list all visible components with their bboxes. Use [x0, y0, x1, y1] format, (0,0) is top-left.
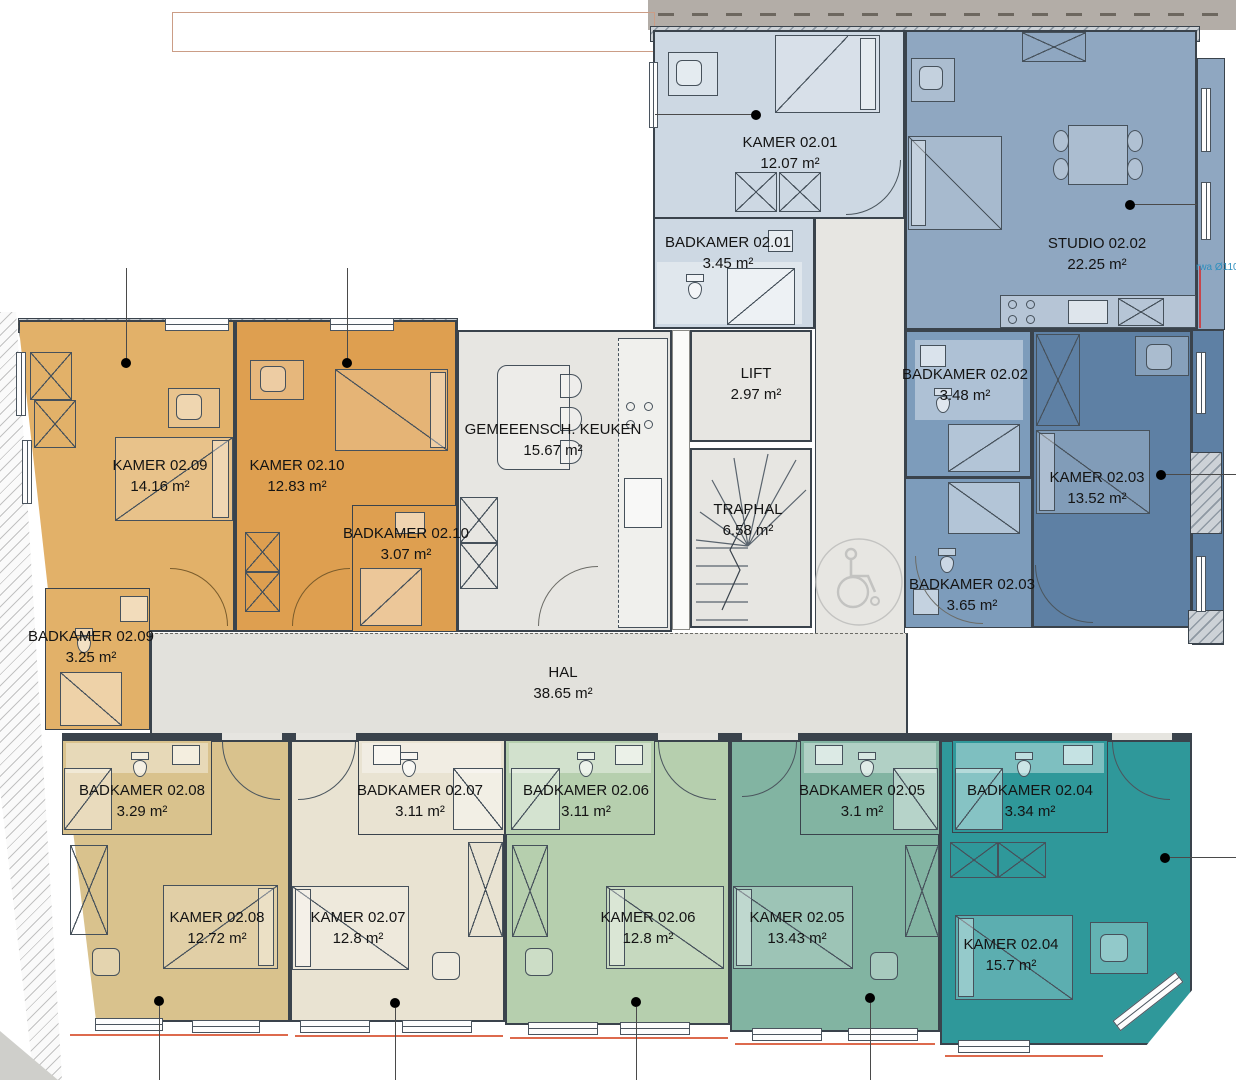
leader-line [636, 1007, 637, 1080]
window [402, 1020, 472, 1033]
counter-unit [1118, 298, 1164, 326]
leader-line [1133, 204, 1197, 205]
sink [920, 345, 946, 367]
window [1196, 352, 1206, 414]
ref-dot-kamer-02-09 [121, 358, 131, 368]
toilet-icon [75, 628, 93, 654]
shaft [672, 330, 690, 630]
wardrobe [905, 845, 939, 937]
ref-dot-kamer-02-05 [865, 993, 875, 1003]
stool [560, 407, 582, 431]
stove-burner [644, 420, 653, 429]
leader-line [1165, 474, 1236, 475]
stairs [692, 450, 810, 626]
toilet-icon [934, 388, 952, 414]
door-opening [296, 733, 356, 740]
leader-line [395, 1008, 396, 1080]
stove-burner [626, 402, 635, 411]
window [848, 1028, 918, 1041]
leader-line [347, 268, 348, 364]
window-sill [945, 1055, 1103, 1057]
bed-pillow [258, 888, 274, 966]
shower-diag [512, 769, 559, 829]
leader-line [655, 114, 757, 115]
bed-pillow [911, 140, 926, 226]
chair [176, 394, 202, 420]
chair [260, 366, 286, 392]
door-opening [222, 733, 282, 740]
toilet-icon [686, 274, 704, 300]
sink [615, 745, 643, 765]
leader-line [159, 1006, 160, 1080]
chair [870, 952, 898, 980]
leader-line [870, 1003, 871, 1080]
window [958, 1040, 1030, 1053]
shower-diag [949, 425, 1019, 471]
wardrobe [245, 572, 280, 612]
wardrobe [779, 172, 821, 212]
ref-dot-kamer-02-07 [390, 998, 400, 1008]
stool [560, 374, 582, 398]
chair [432, 952, 460, 980]
ref-dot-kamer-02-08 [154, 996, 164, 1006]
dining-table [1068, 125, 1128, 185]
wheelchair-icon [813, 536, 905, 628]
wardrobe [245, 532, 280, 572]
window-sill [735, 1043, 935, 1045]
sink [1063, 745, 1093, 765]
shower [360, 568, 422, 626]
shower [948, 482, 1020, 534]
shower-diag [361, 569, 421, 625]
window [16, 352, 26, 416]
stool [560, 440, 582, 464]
stove-burner [1026, 300, 1035, 309]
wardrobe [735, 172, 777, 212]
window [649, 62, 658, 128]
road-dashes [658, 13, 1236, 16]
sink [624, 478, 662, 528]
stove-burner [1008, 300, 1017, 309]
bed-pillow [212, 440, 229, 518]
window [165, 318, 229, 331]
bed-pillow [958, 918, 974, 997]
window [620, 1022, 690, 1035]
sink [768, 230, 793, 252]
shower-diag [454, 769, 502, 829]
wardrobe [468, 842, 503, 937]
shower-diag [956, 769, 1002, 829]
ref-dot-kamer-02-10 [342, 358, 352, 368]
bed-pillow [736, 889, 752, 966]
chair [92, 948, 120, 976]
red-marker [1199, 266, 1201, 328]
shower-diag [65, 769, 111, 829]
shower [453, 768, 503, 830]
window [95, 1018, 163, 1031]
wardrobe [460, 497, 498, 543]
shower-diag [949, 483, 1019, 533]
ref-dot-kamer-02-06 [631, 997, 641, 1007]
stove-burner [644, 402, 653, 411]
window-sill [510, 1037, 728, 1039]
wardrobe [512, 845, 548, 937]
door-opening [658, 733, 718, 740]
wardrobe [950, 842, 998, 878]
bed-fold [776, 36, 848, 112]
ref-dot-kamer-02-01 [751, 110, 761, 120]
toilet-icon [400, 752, 418, 778]
shower-diag [728, 269, 794, 324]
chair [1053, 130, 1069, 152]
room-lift [690, 330, 812, 442]
sink [395, 512, 425, 534]
window [300, 1020, 370, 1033]
room-hal [150, 633, 908, 737]
bed-pillow [295, 889, 311, 967]
shower [948, 424, 1020, 472]
window [1201, 88, 1211, 152]
floor-plan: KAMER 02.0112.07 m² BADKAMER 02.013.45 m… [0, 0, 1236, 1080]
window-sill [70, 1034, 288, 1036]
toilet-icon [1015, 752, 1033, 778]
bed-pillow [609, 889, 625, 966]
toilet-icon [858, 752, 876, 778]
bed-pillow [430, 372, 446, 448]
shower [60, 672, 122, 726]
bed-pillow [1039, 433, 1055, 511]
window-sill [295, 1035, 503, 1037]
door-opening [742, 733, 798, 740]
shower [511, 768, 560, 830]
door-opening [1112, 733, 1172, 740]
wall-hatch-right2 [1188, 610, 1224, 644]
wardrobe [998, 842, 1046, 878]
stove-burner [1008, 315, 1017, 324]
chair [919, 66, 943, 90]
pipe-annotation: rwa Ø110 [1196, 262, 1236, 273]
sink [815, 745, 843, 765]
shower-diag [61, 673, 121, 725]
ref-dot-kamer-02-03 [1156, 470, 1166, 480]
sink [120, 596, 148, 622]
shower [64, 768, 112, 830]
toilet-icon [131, 752, 149, 778]
wall-hatch-right [1190, 452, 1222, 534]
chair [1100, 934, 1128, 962]
shower [955, 768, 1003, 830]
chair [1146, 344, 1172, 370]
window [330, 318, 394, 331]
bed-pillow [860, 38, 876, 110]
ref-dot-kamer-02-04 [1160, 853, 1170, 863]
wardrobe [1022, 32, 1086, 62]
toilet-icon [577, 752, 595, 778]
sink [1068, 300, 1108, 324]
wardrobe [34, 400, 76, 448]
chair [1127, 130, 1143, 152]
chair [1127, 158, 1143, 180]
leader-line [1170, 857, 1236, 858]
wardrobe [1036, 334, 1080, 426]
stove-burner [626, 420, 635, 429]
window [752, 1028, 822, 1041]
wardrobe [30, 352, 72, 400]
shower [893, 768, 938, 830]
window [1196, 556, 1206, 612]
ref-dot-studio-02-02 [1125, 200, 1135, 210]
leader-line [126, 268, 127, 364]
window [1201, 182, 1211, 240]
sink [172, 745, 200, 765]
stove-burner [1026, 315, 1035, 324]
wardrobe [70, 845, 108, 935]
sink [373, 745, 401, 765]
shower-diag [894, 769, 937, 829]
window [22, 440, 32, 504]
wardrobe [460, 543, 498, 589]
chair [1053, 158, 1069, 180]
chair [525, 948, 553, 976]
window [192, 1020, 260, 1033]
chair [676, 60, 702, 86]
neighbour-outline [172, 12, 655, 52]
shower [727, 268, 795, 325]
window [528, 1022, 598, 1035]
